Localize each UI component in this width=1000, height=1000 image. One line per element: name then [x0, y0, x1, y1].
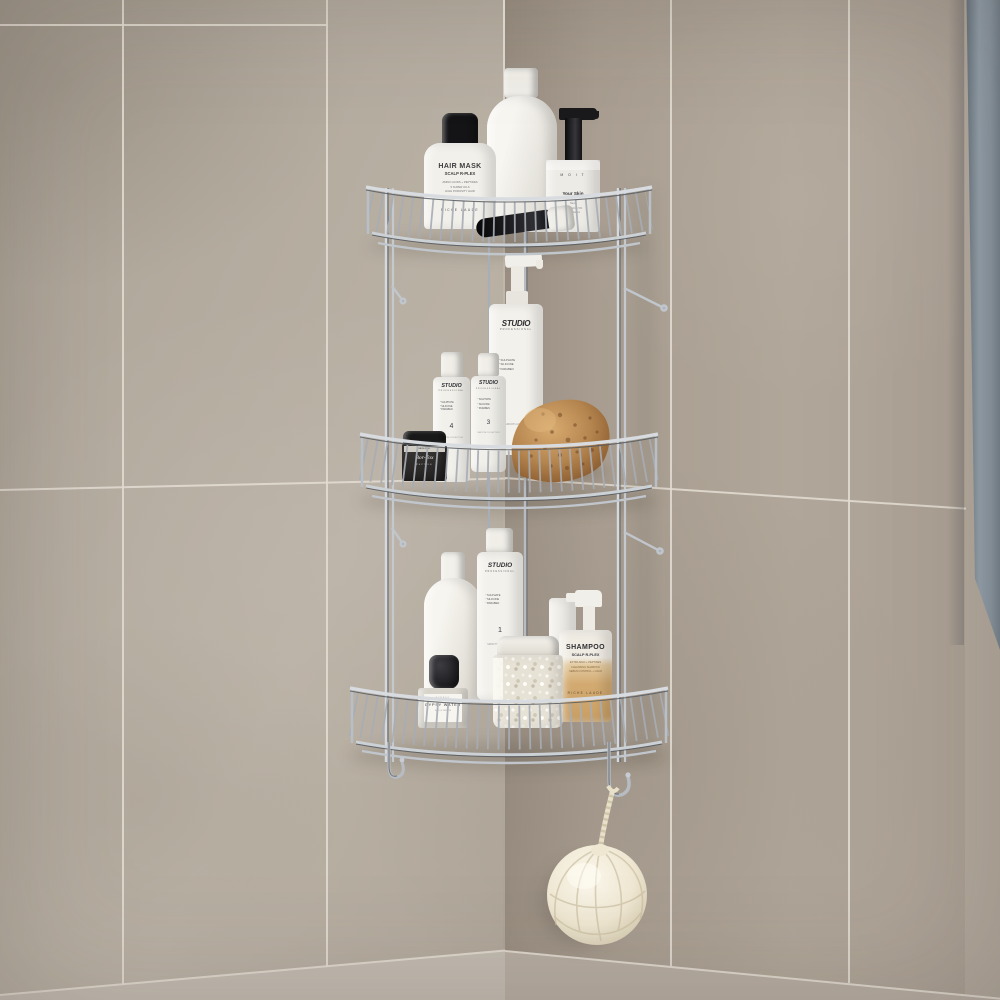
bottle-cap: [504, 68, 538, 98]
grout-line: [848, 0, 850, 983]
basket-tier-2: [360, 434, 658, 508]
panel-shadow: [948, 0, 964, 645]
shower-caddy-front-frame: [330, 150, 700, 830]
hanging-rope: [600, 786, 618, 850]
black-cap: [442, 113, 478, 147]
loofah-ball: [547, 844, 647, 945]
mesh-loofah-on-rope: [520, 770, 680, 950]
basket-tier-1: [366, 187, 652, 254]
bathroom-photo: HAIR MASK SCALP R-PLEX AMINO ACIDS + PEP…: [0, 0, 1000, 1000]
glass-panel-edge: [962, 0, 1000, 650]
pump-spout: [592, 111, 599, 119]
basket-tier-3: [350, 688, 668, 763]
grout-line: [122, 0, 124, 993]
grout-line: [326, 0, 328, 977]
grout-line: [0, 24, 327, 26]
